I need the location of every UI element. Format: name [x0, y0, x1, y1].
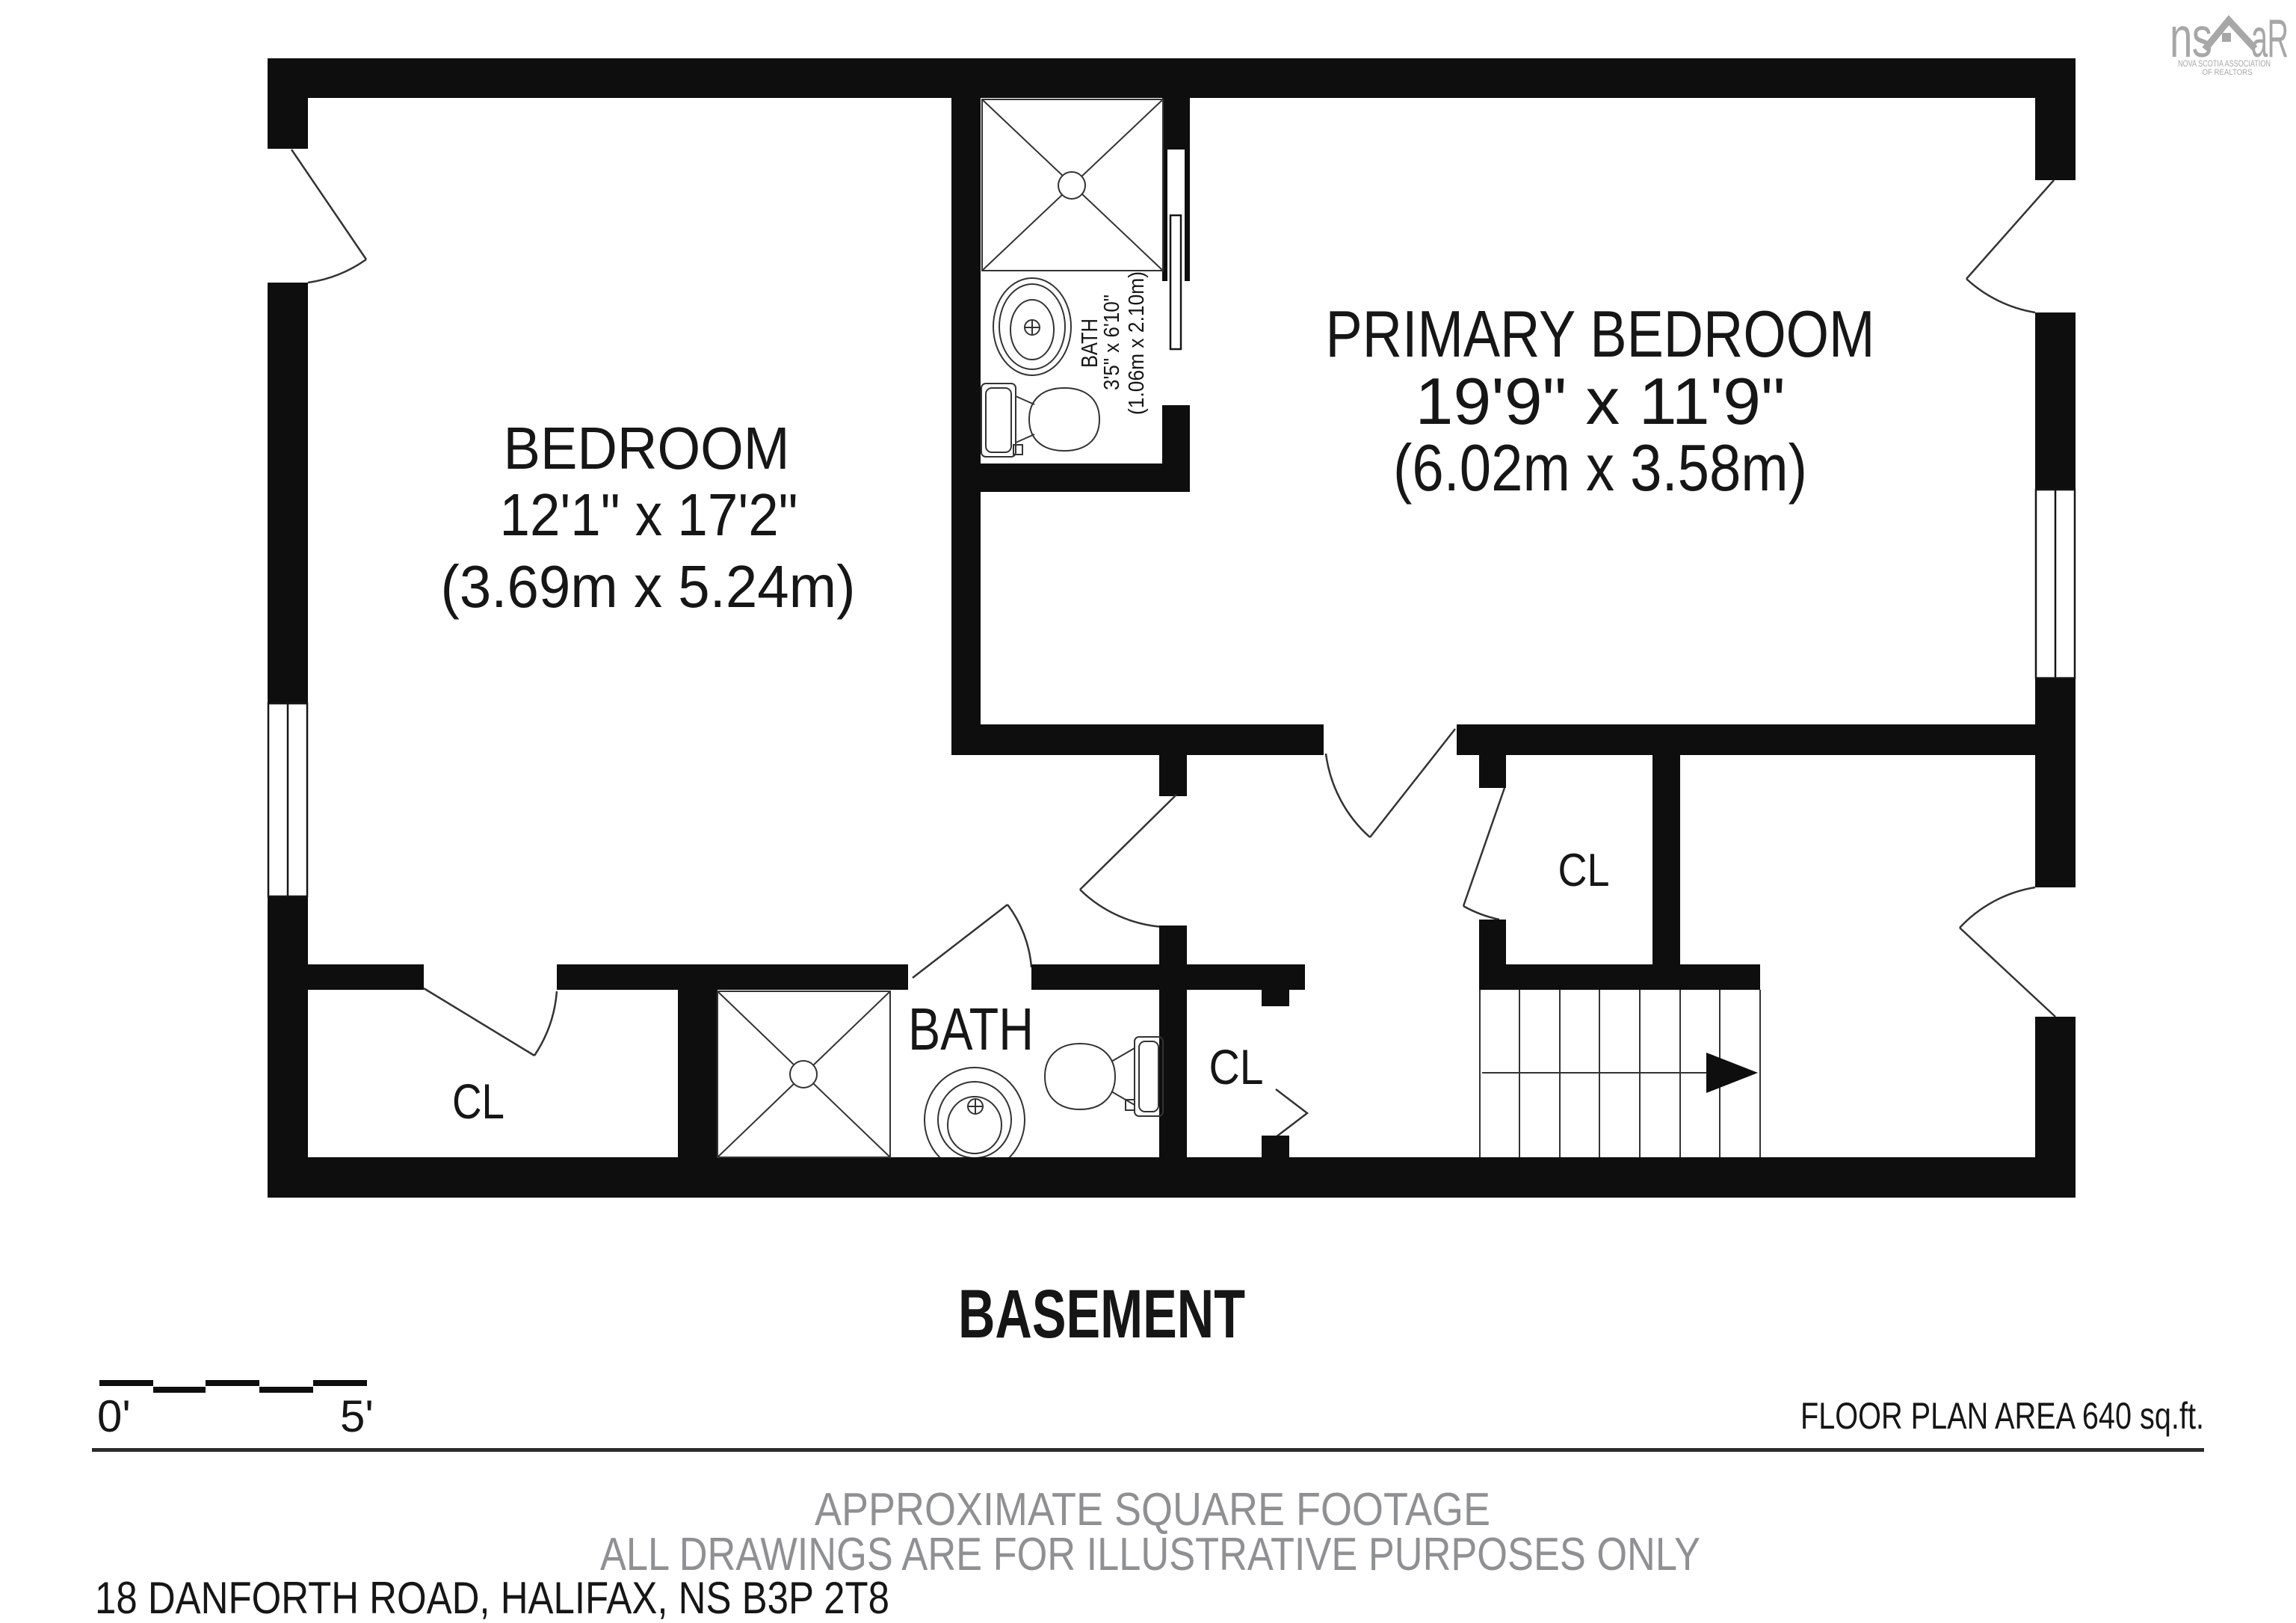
svg-text:12'1" x 17'2": 12'1" x 17'2"	[500, 481, 798, 548]
svg-text:(6.02m x 3.58m): (6.02m x 3.58m)	[1393, 431, 1807, 505]
svg-text:CL: CL	[1558, 845, 1610, 896]
svg-text:APPROXIMATE SQUARE FOOTAGE: APPROXIMATE SQUARE FOOTAGE	[815, 1484, 1490, 1536]
svg-text:18 DANFORTH ROAD, HALIFAX, NS: 18 DANFORTH ROAD, HALIFAX, NS B3P 2T8	[95, 1573, 889, 1623]
svg-text:FLOOR PLAN AREA 640 sq.ft.: FLOOR PLAN AREA 640 sq.ft.	[1800, 1395, 2204, 1437]
svg-text:NOVA SCOTIA ASSOCIATION: NOVA SCOTIA ASSOCIATION	[2178, 58, 2271, 69]
svg-text:OF REALTORS: OF REALTORS	[2203, 68, 2253, 77]
svg-text:BASEMENT: BASEMENT	[958, 1276, 1245, 1352]
svg-text:BATH: BATH	[908, 996, 1034, 1062]
svg-text:0': 0'	[97, 1391, 131, 1441]
svg-text:CL: CL	[452, 1074, 504, 1129]
svg-text:BEDROOM: BEDROOM	[504, 415, 790, 481]
svg-text:3'5" x 6'10": 3'5" x 6'10"	[1100, 295, 1124, 390]
svg-text:BATH: BATH	[1076, 318, 1102, 368]
svg-text:(3.69m x 5.24m): (3.69m x 5.24m)	[441, 553, 856, 620]
svg-text:19'9" x 11'9": 19'9" x 11'9"	[1416, 364, 1786, 438]
svg-text:5': 5'	[340, 1391, 374, 1441]
svg-text:CL: CL	[1209, 1039, 1264, 1094]
svg-text:(1.06m x 2.10m): (1.06m x 2.10m)	[1125, 271, 1149, 415]
svg-text:PRIMARY BEDROOM: PRIMARY BEDROOM	[1326, 297, 1875, 371]
